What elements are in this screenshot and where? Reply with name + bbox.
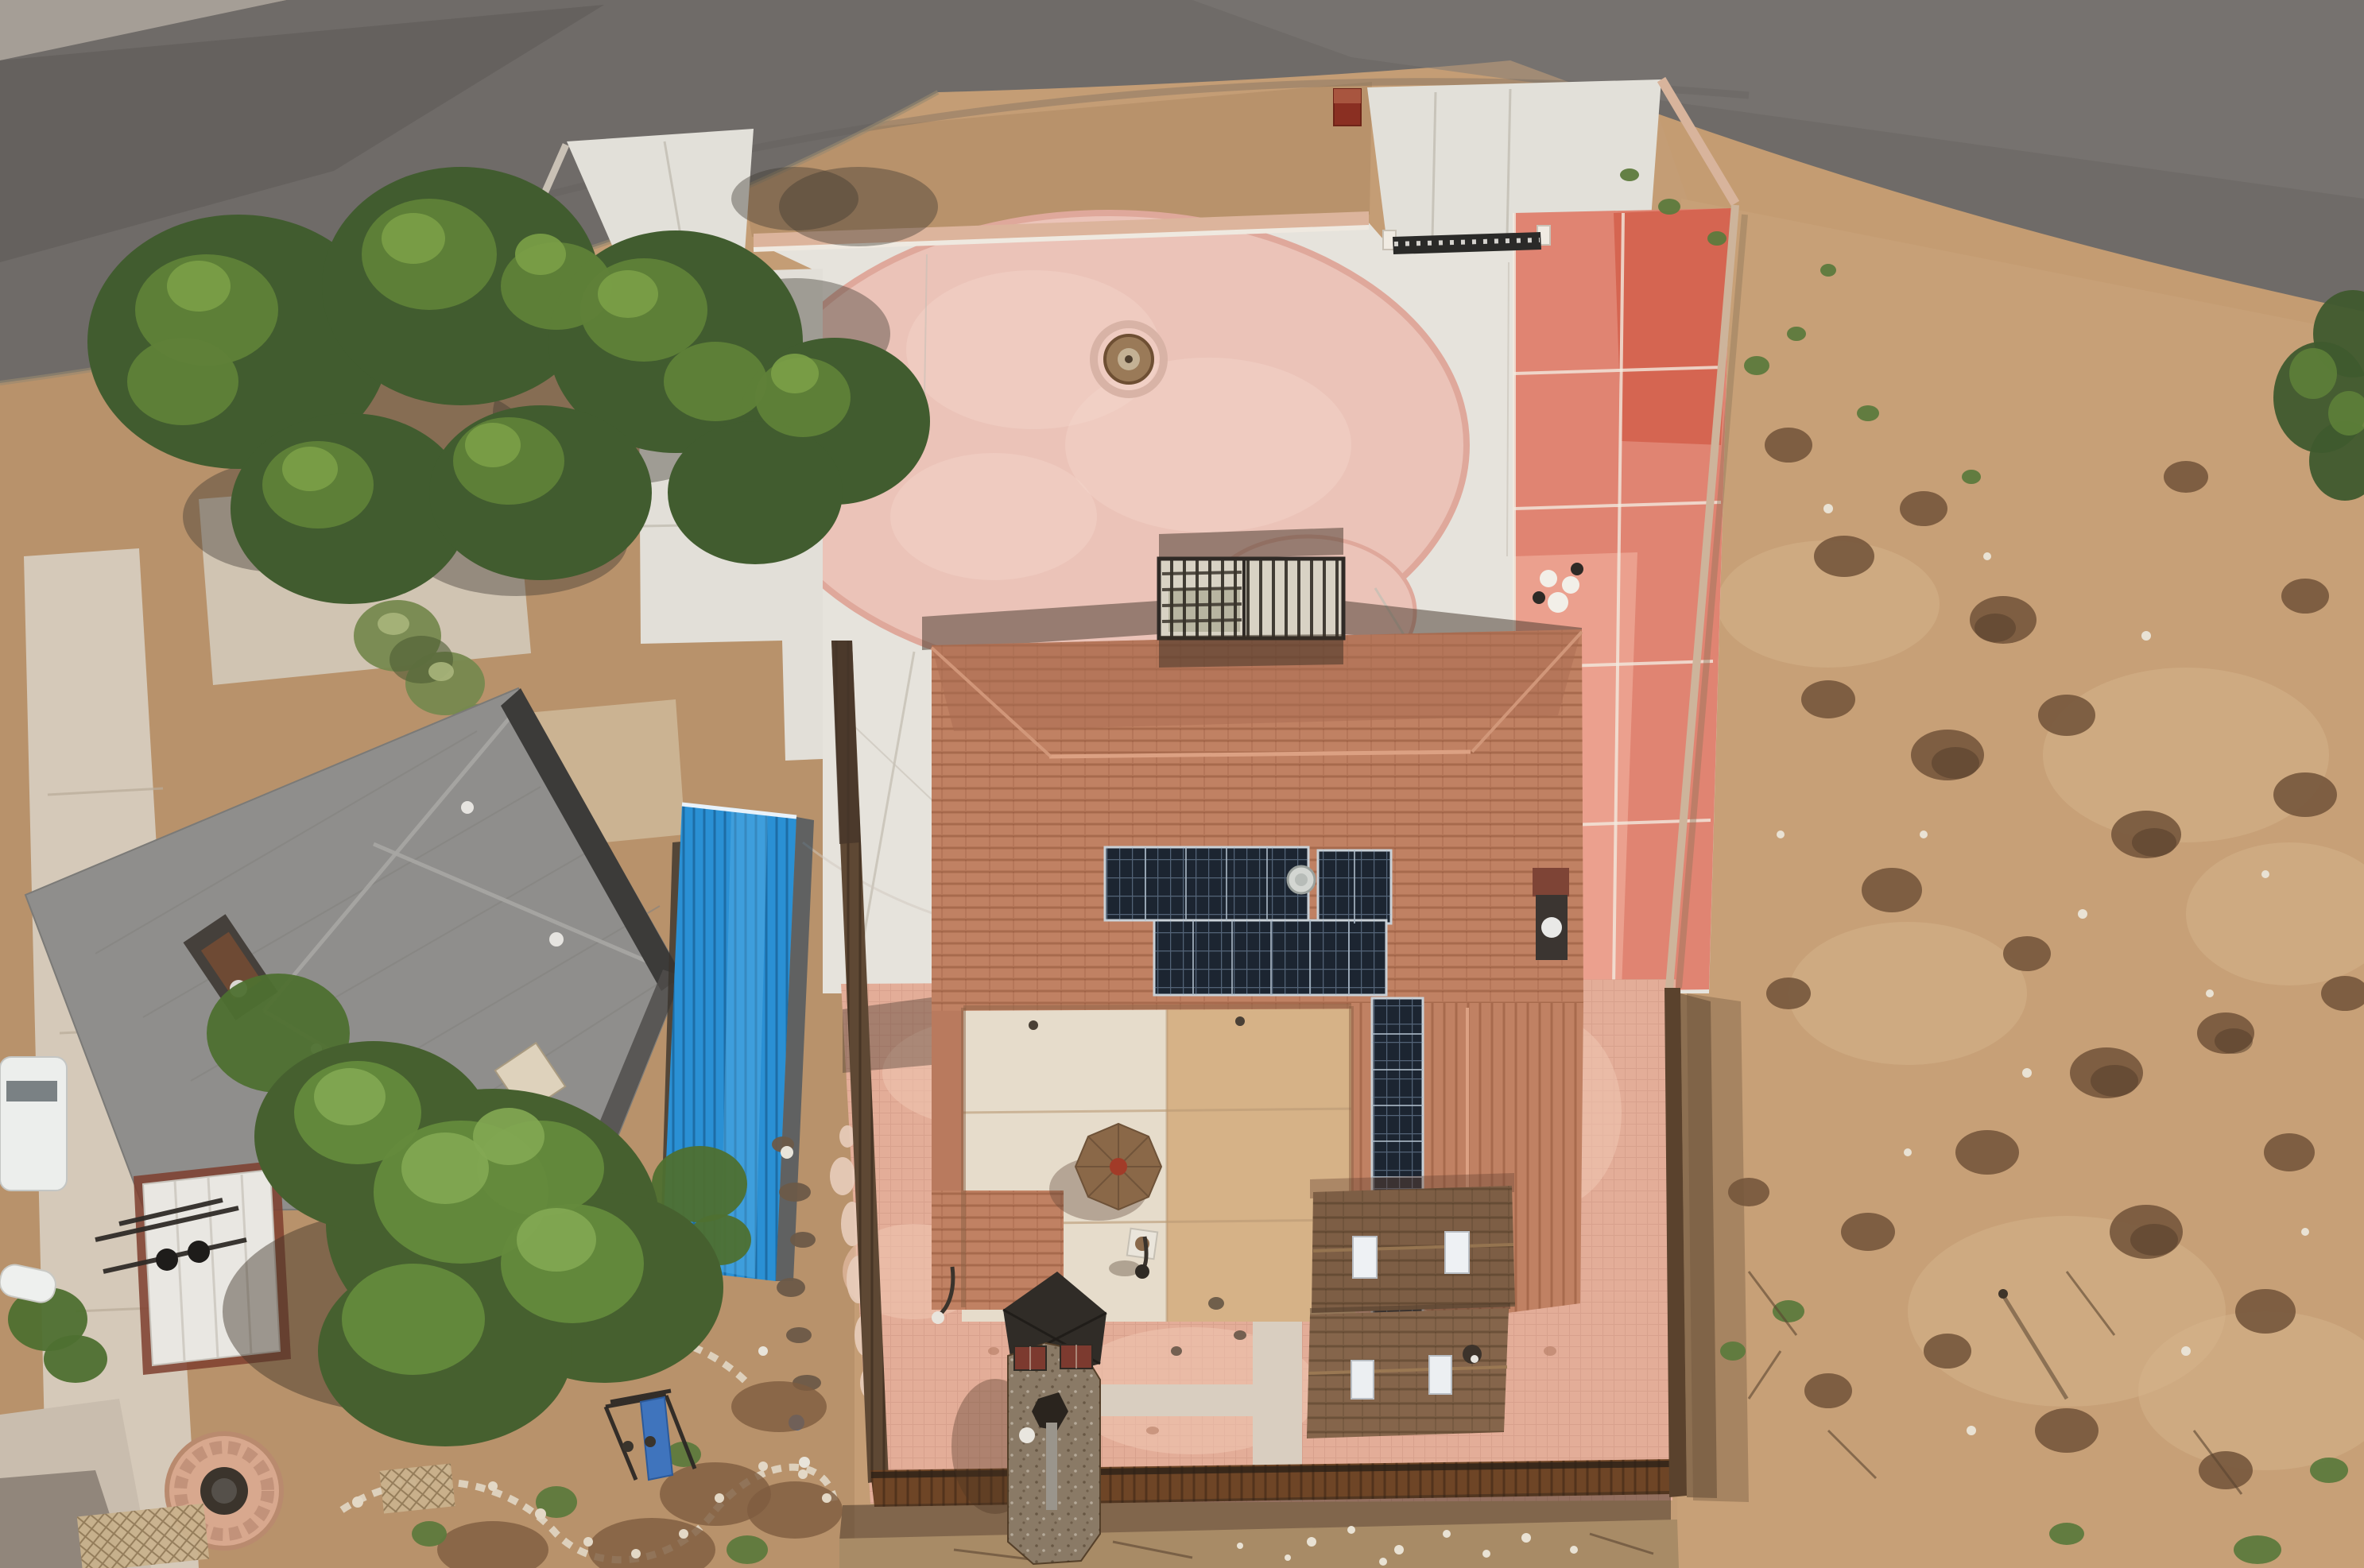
lamp-post-east-ball <box>1135 1264 1149 1279</box>
power-pole <box>1998 1289 2008 1299</box>
white-van-windshield <box>6 1081 57 1101</box>
palapa-finial <box>1110 1158 1127 1175</box>
rooftop-deck-rails <box>1159 559 1343 638</box>
tower-pole <box>1046 1423 1057 1510</box>
lattice-panel-2-grid <box>379 1463 455 1513</box>
mailbox-cap <box>1334 89 1361 103</box>
roof-vent-round-inner <box>1295 873 1308 886</box>
aerial-photo <box>0 0 2364 1568</box>
deck-shadow-on-roof <box>1159 634 1343 668</box>
solar-array-row1-cells <box>1105 847 1308 920</box>
chimney-red-box <box>1533 868 1569 896</box>
fence-east-debris-streak <box>1687 993 1749 1502</box>
walkway-cross <box>1079 1384 1254 1416</box>
shed-south-vent-dot <box>1471 1355 1478 1363</box>
tower-white-ball <box>1019 1427 1035 1443</box>
fountain-center <box>1125 355 1133 363</box>
chimney-cap <box>1541 917 1562 938</box>
firepit-inner <box>211 1478 237 1504</box>
lamp-post-west-ball <box>932 1311 944 1324</box>
white-van <box>0 1057 67 1191</box>
aerial-photo-stage <box>0 0 2364 1568</box>
